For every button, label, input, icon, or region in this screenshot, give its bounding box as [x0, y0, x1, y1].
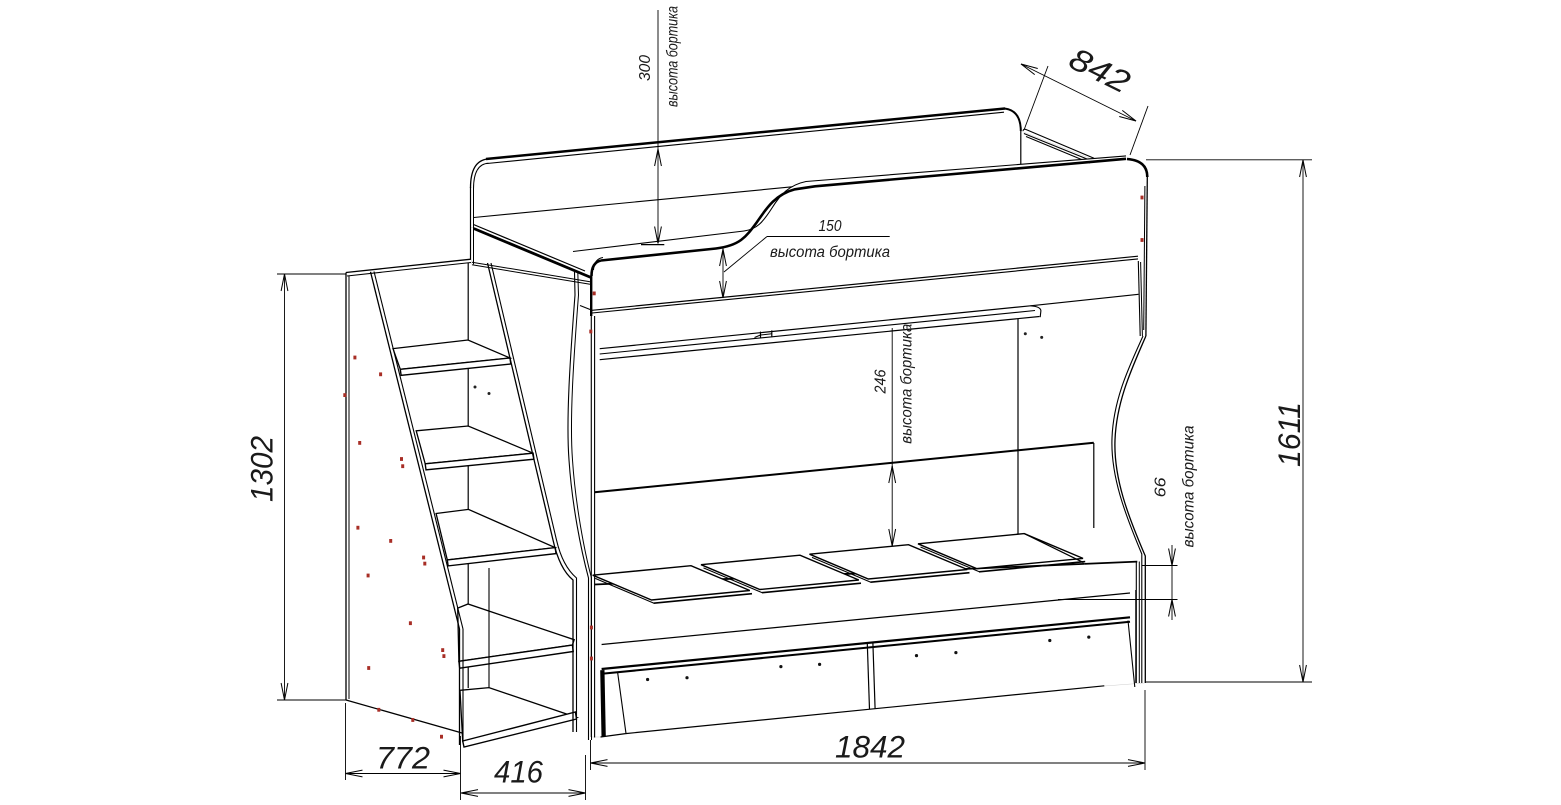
svg-text:416: 416: [494, 754, 543, 790]
svg-text:150: 150: [819, 218, 842, 235]
svg-text:300: 300: [637, 55, 654, 81]
svg-text:1842: 1842: [835, 729, 905, 765]
svg-text:1302: 1302: [244, 436, 280, 502]
svg-text:66: 66: [1153, 477, 1170, 497]
svg-text:высота бортика: высота бортика: [770, 244, 890, 261]
svg-text:246: 246: [873, 369, 890, 394]
svg-text:772: 772: [376, 740, 430, 776]
svg-text:высота бортика: высота бортика: [1180, 425, 1197, 547]
svg-text:1611: 1611: [1271, 402, 1307, 467]
svg-text:высота бортика: высота бортика: [899, 323, 916, 443]
svg-text:высота бортика: высота бортика: [664, 6, 681, 107]
